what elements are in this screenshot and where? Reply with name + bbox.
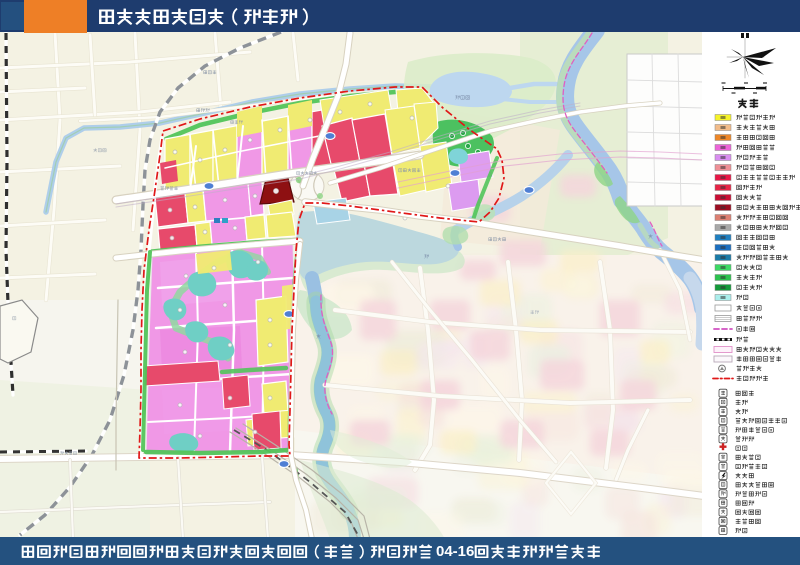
svg-text:04-16: 04-16 [436,543,474,560]
